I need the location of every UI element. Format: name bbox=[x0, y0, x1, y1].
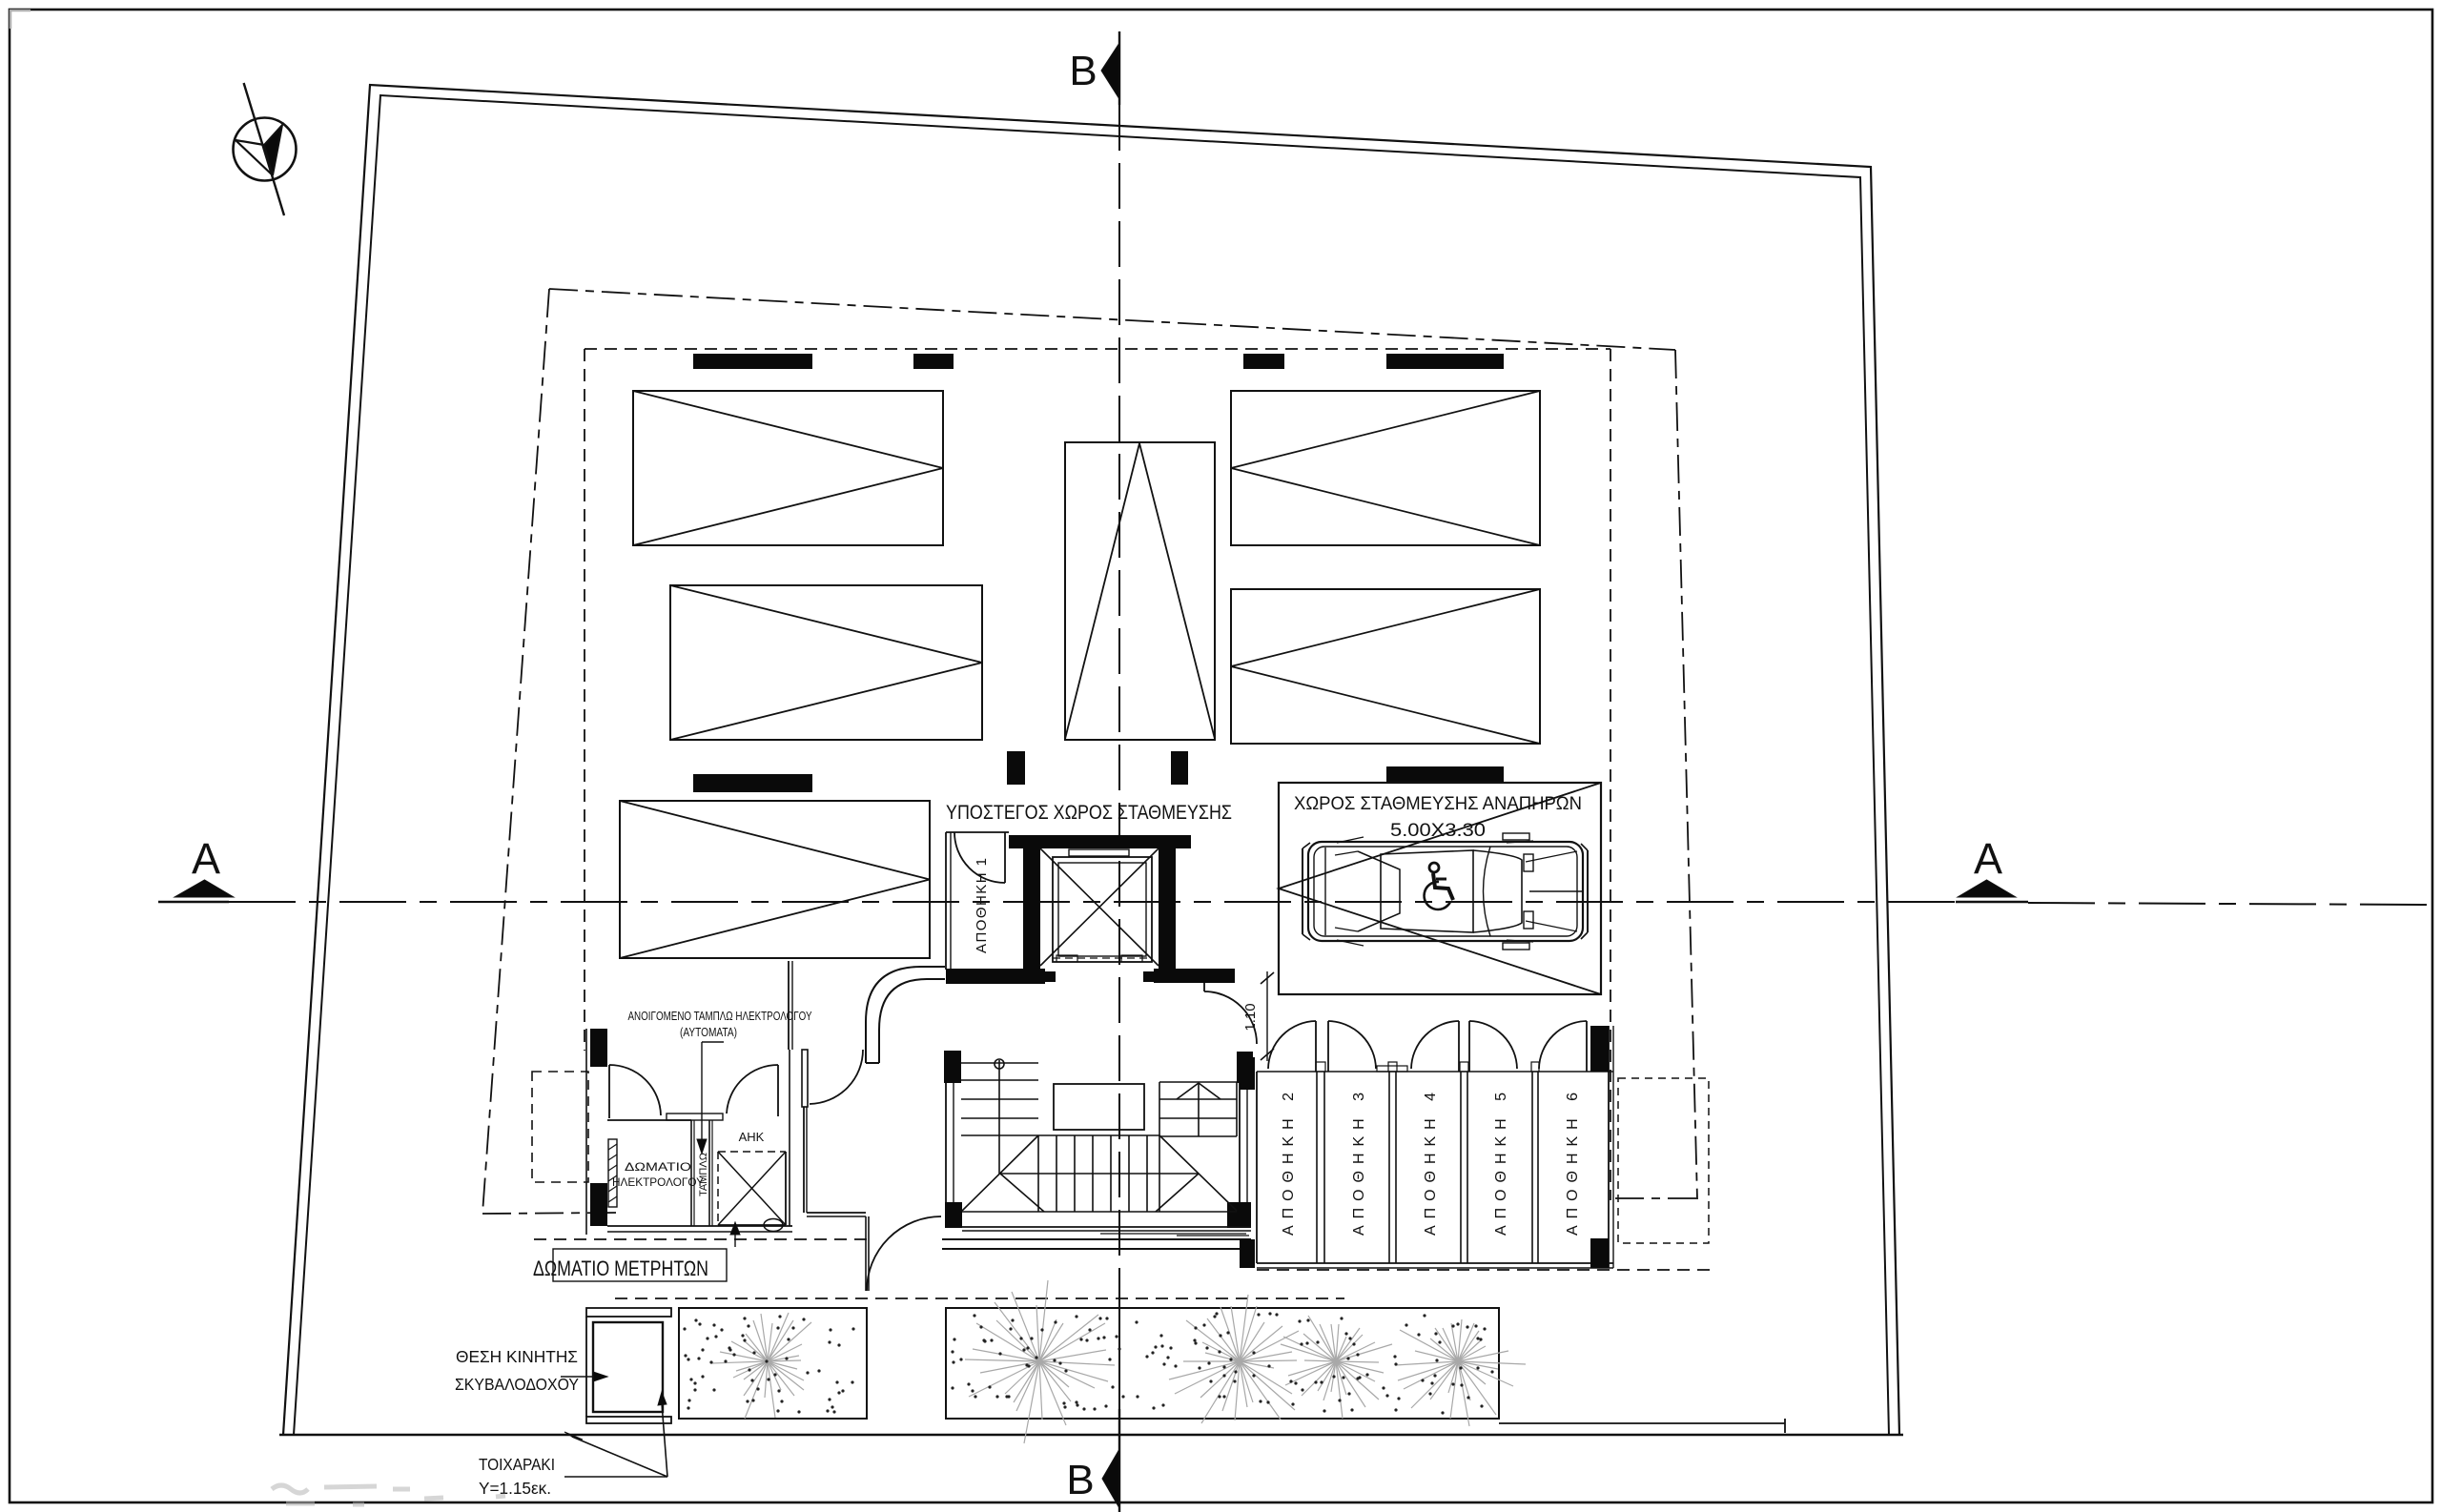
svg-text:ΔΩΜΑΤΙΟ: ΔΩΜΑΤΙΟ bbox=[625, 1160, 691, 1174]
svg-text:ΘΕΣΗ ΚΙΝΗΤΗΣ: ΘΕΣΗ ΚΙΝΗΤΗΣ bbox=[456, 1347, 578, 1366]
svg-text:ΑΝΟΙΓΟΜΕΝΟ ΤΑΜΠΛΩ ΗΛΕΚΤΡΟΛΟΓΟΥ: ΑΝΟΙΓΟΜΕΝΟ ΤΑΜΠΛΩ ΗΛΕΚΤΡΟΛΟΓΟΥ bbox=[628, 1009, 812, 1023]
svg-text:5.00X3.30: 5.00X3.30 bbox=[1390, 820, 1486, 841]
svg-text:ΣΚΥΒΑΛΟΔΟΧΟΥ: ΣΚΥΒΑΛΟΔΟΧΟΥ bbox=[455, 1375, 579, 1394]
svg-text:AHK: AHK bbox=[739, 1130, 765, 1144]
svg-text:1.10: 1.10 bbox=[1242, 1003, 1259, 1031]
svg-text:Υ=1.15εκ.: Υ=1.15εκ. bbox=[479, 1479, 551, 1498]
svg-text:(ΑΥΤΟΜΑΤΑ): (ΑΥΤΟΜΑΤΑ) bbox=[680, 1025, 737, 1039]
svg-text:ΗΛΕΚΤΡΟΛΟΓΟΥ: ΗΛΕΚΤΡΟΛΟΓΟΥ bbox=[612, 1175, 704, 1189]
svg-text:B: B bbox=[1066, 1457, 1094, 1503]
svg-text:A: A bbox=[192, 834, 220, 883]
svg-text:ΔΩΜΑΤΙΟ ΜΕΤΡΗΤΩΝ: ΔΩΜΑΤΙΟ ΜΕΤΡΗΤΩΝ bbox=[533, 1257, 708, 1280]
svg-text:ΤΑΜΠΛΩ: ΤΑΜΠΛΩ bbox=[698, 1153, 709, 1196]
svg-text:ΥΠΟΣΤΕΓΟΣ ΧΩΡΟΣ ΣΤΑΘΜΕΥΣΗΣ: ΥΠΟΣΤΕΓΟΣ ΧΩΡΟΣ ΣΤΑΘΜΕΥΣΗΣ bbox=[946, 802, 1232, 824]
svg-text:A: A bbox=[1974, 834, 2002, 883]
svg-text:ΧΩΡΟΣ ΣΤΑΘΜΕΥΣΗΣ ΑΝΑΠΗΡΩΝ: ΧΩΡΟΣ ΣΤΑΘΜΕΥΣΗΣ ΑΝΑΠΗΡΩΝ bbox=[1294, 793, 1582, 814]
svg-text:B: B bbox=[1069, 48, 1097, 94]
svg-text:ΤΟΙΧΑΡΑΚΙ: ΤΟΙΧΑΡΑΚΙ bbox=[479, 1455, 555, 1474]
